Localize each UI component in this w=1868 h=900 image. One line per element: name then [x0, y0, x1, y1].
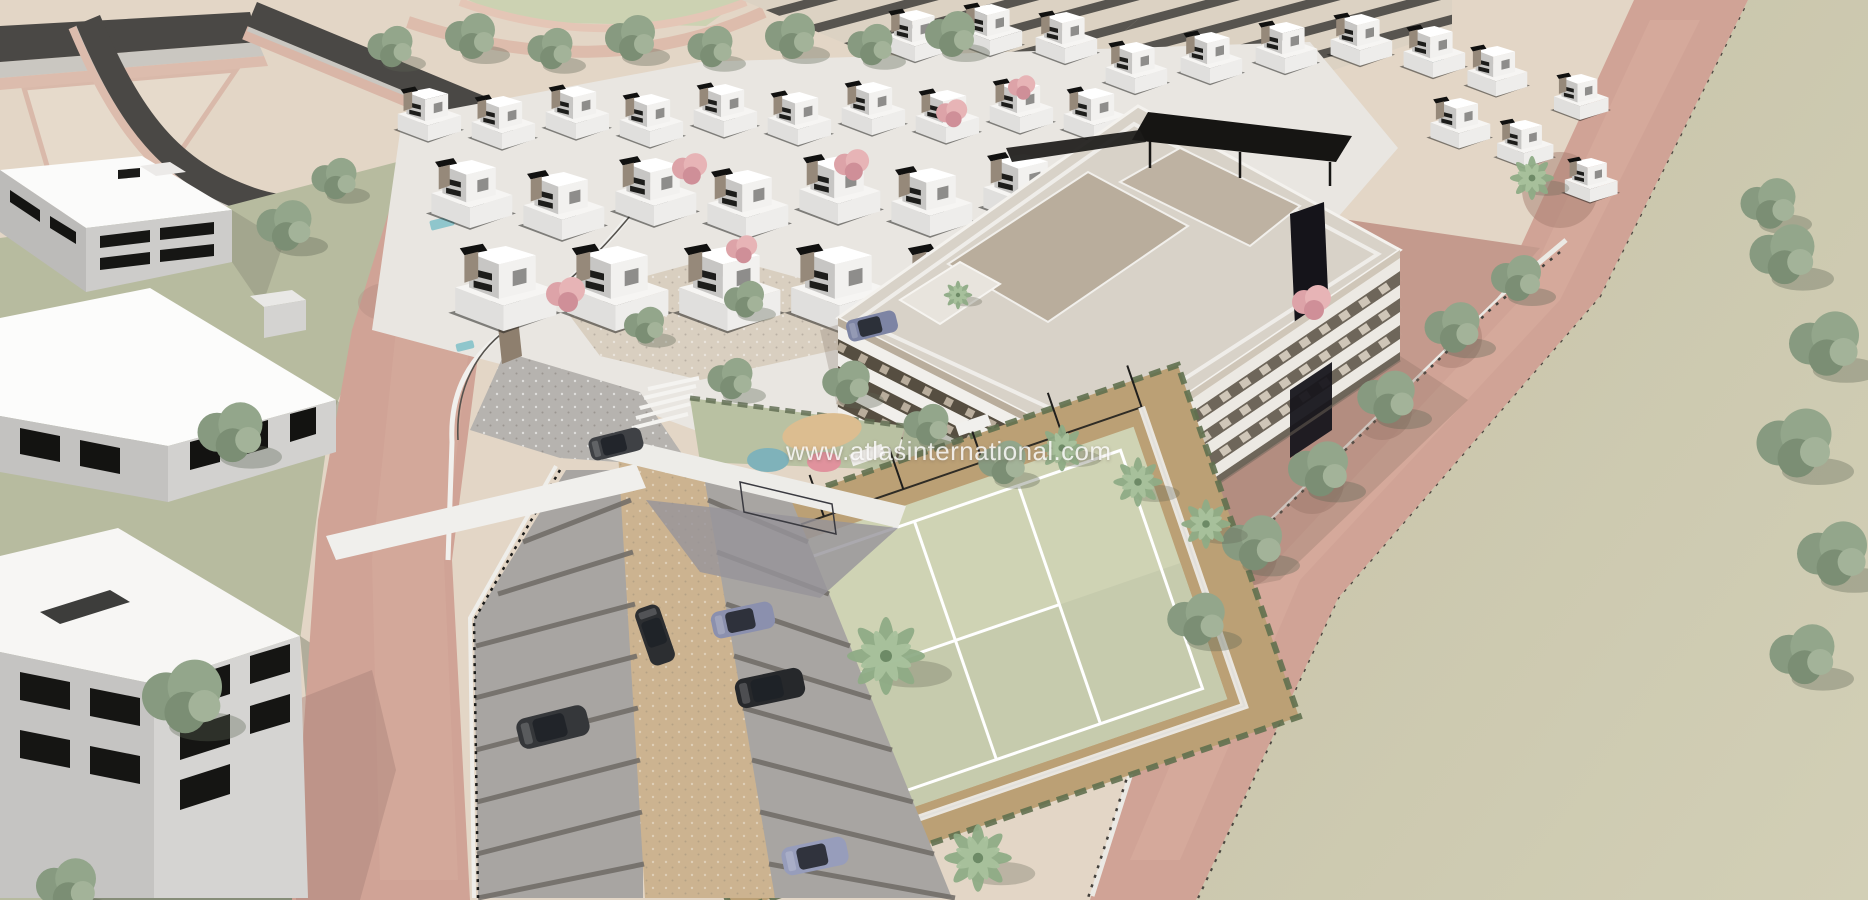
render-canvas: www.atlasinternational.com — [0, 0, 1868, 900]
scene-svg — [0, 0, 1868, 900]
blue-circle — [747, 448, 789, 472]
pink-circle — [807, 452, 841, 472]
